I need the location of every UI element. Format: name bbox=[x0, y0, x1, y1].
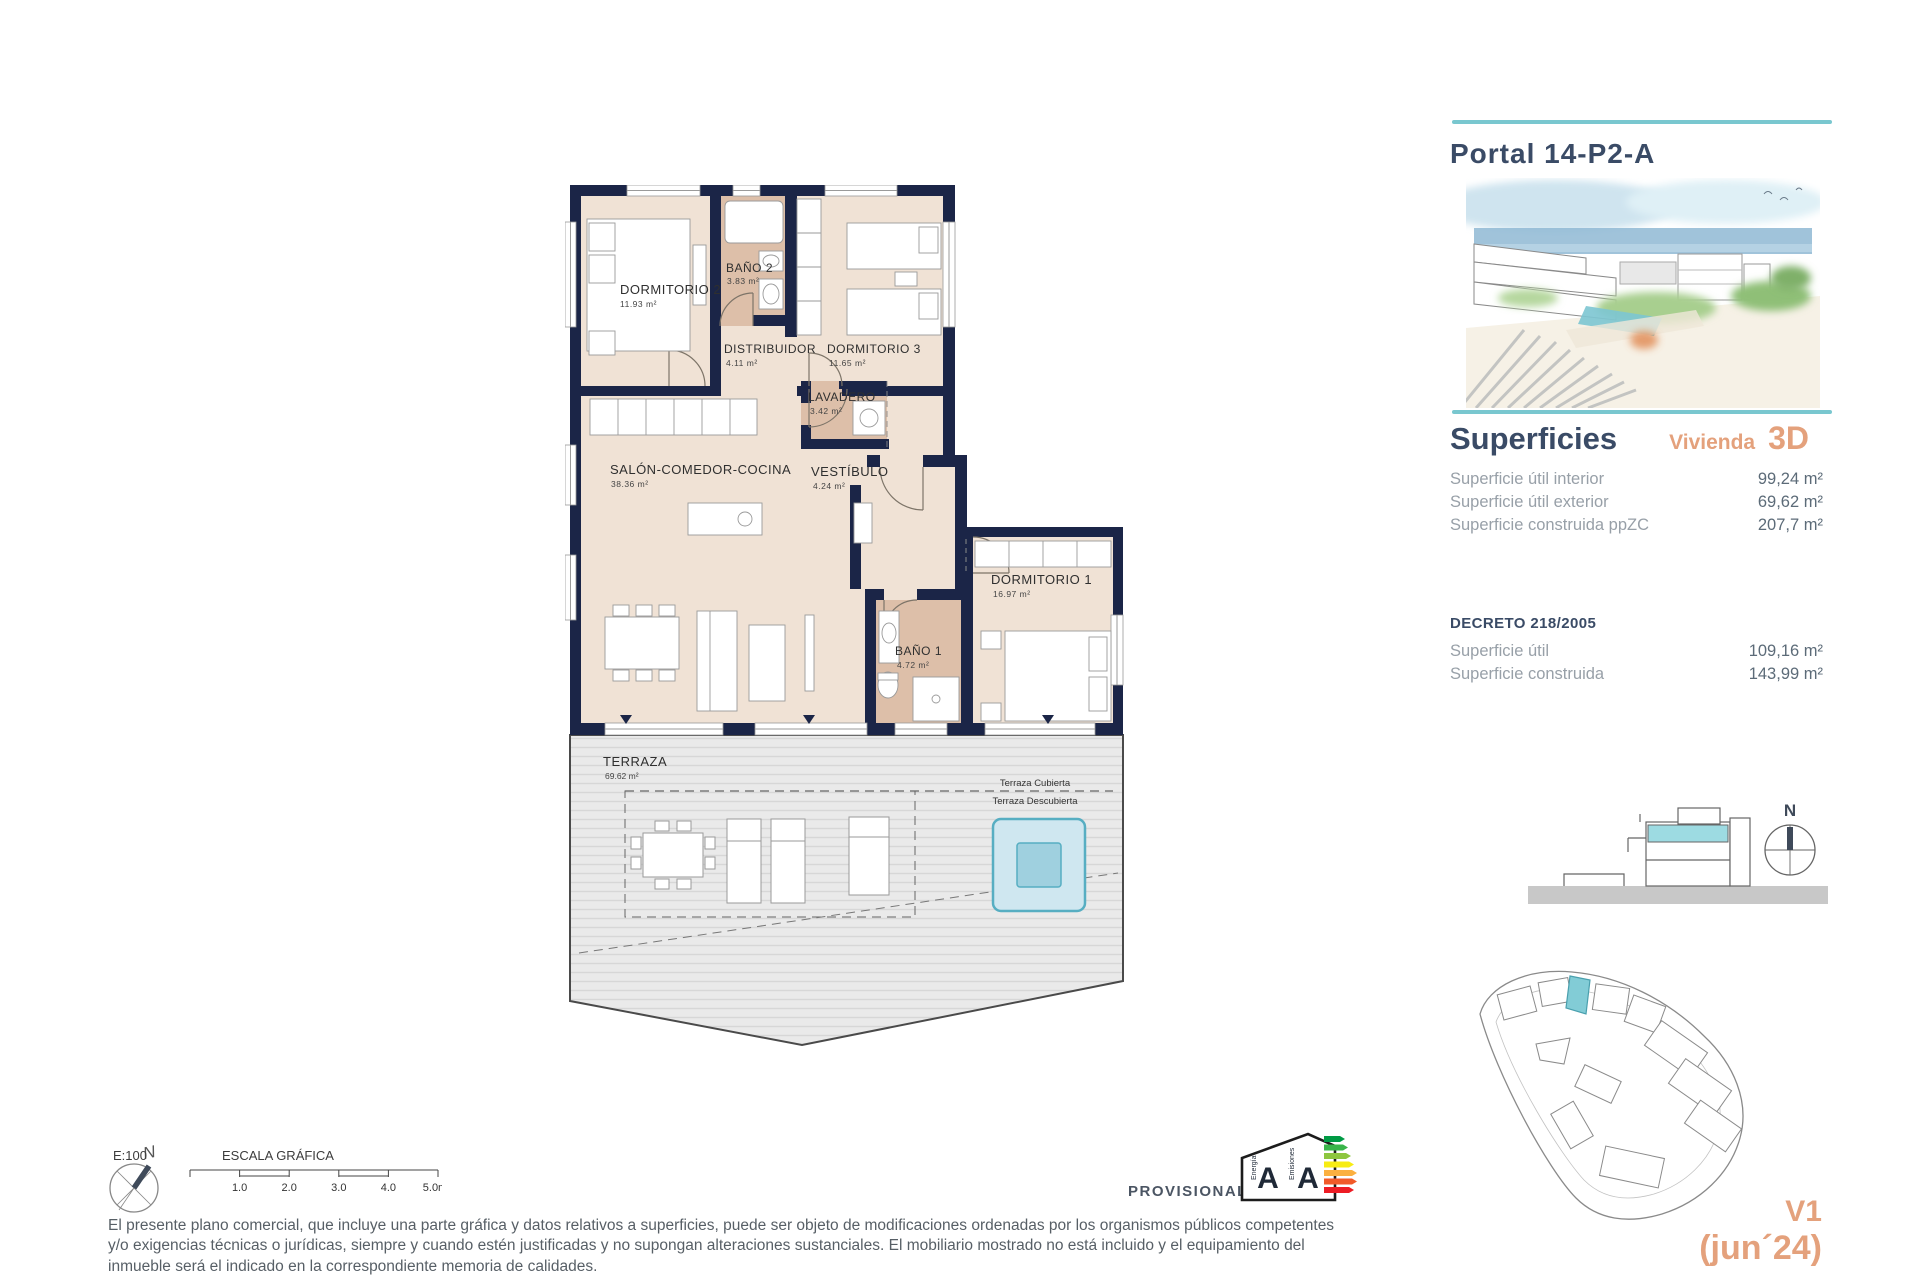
svg-text:LAVADERO: LAVADERO bbox=[808, 390, 876, 404]
vivienda-label: Vivienda bbox=[1669, 431, 1755, 455]
scale-ratio: E:100 bbox=[113, 1148, 147, 1163]
surface-row: Superficie construida ppZC 207,7 m² bbox=[1450, 514, 1823, 537]
room-area: 69.62 m² bbox=[605, 771, 639, 781]
page-title: Portal 14-P2-A bbox=[1450, 138, 1655, 170]
energy-rating-icon: Energía A Emisiones A bbox=[1238, 1130, 1358, 1208]
superficies-heading: Superficies bbox=[1450, 421, 1617, 457]
superficies-header: Superficies Vivienda 3D bbox=[1450, 420, 1835, 457]
surface-row: Superficie útil exterior 69,62 m² bbox=[1450, 491, 1823, 514]
terrace-covered-label: Terraza Cubierta bbox=[1000, 778, 1071, 789]
svg-text:DORMITORIO 2: DORMITORIO 2 bbox=[620, 282, 721, 297]
vivienda-type: 3D bbox=[1768, 420, 1809, 457]
svg-text:DISTRIBUIDOR: DISTRIBUIDOR bbox=[724, 342, 816, 356]
plan-sheet: Terraza Cubierta Terraza Descubierta TER… bbox=[0, 0, 1920, 1280]
svg-text:3.83 m²: 3.83 m² bbox=[727, 276, 759, 286]
surface-row: Superficie útil interior 99,24 m² bbox=[1450, 468, 1823, 491]
svg-text:11.93 m²: 11.93 m² bbox=[620, 299, 657, 309]
plunge-pool bbox=[993, 819, 1085, 911]
terrace-uncovered-label: Terraza Descubierta bbox=[992, 796, 1078, 807]
svg-text:DORMITORIO 3: DORMITORIO 3 bbox=[827, 342, 921, 356]
teal-rule-bottom bbox=[1452, 410, 1832, 414]
section-north-compass: N bbox=[1765, 801, 1815, 875]
svg-text:4.72 m²: 4.72 m² bbox=[897, 660, 929, 670]
north-label: N bbox=[1784, 801, 1796, 820]
svg-text:3.42 m²: 3.42 m² bbox=[810, 406, 842, 416]
svg-text:4.11 m²: 4.11 m² bbox=[726, 358, 758, 368]
svg-text:SALÓN-COMEDOR-COCINA: SALÓN-COMEDOR-COCINA bbox=[610, 462, 791, 477]
scale-tick: 1.0 bbox=[232, 1182, 247, 1194]
energy-letter: A bbox=[1297, 1162, 1319, 1195]
terrace: Terraza Cubierta Terraza Descubierta TER… bbox=[570, 735, 1123, 1045]
version-block: V1 (jun´24) bbox=[1560, 1196, 1822, 1268]
svg-text:VESTÍBULO: VESTÍBULO bbox=[811, 464, 888, 479]
scale-tick: 2.0 bbox=[282, 1182, 297, 1194]
scale-tick: 5.0m bbox=[423, 1182, 442, 1194]
watercolor-illustration bbox=[1466, 178, 1820, 408]
version-code: V1 bbox=[1560, 1196, 1822, 1228]
svg-text:BAÑO 2: BAÑO 2 bbox=[726, 261, 773, 275]
decreto-rows: Superficie útil 109,16 m² Superficie con… bbox=[1450, 640, 1823, 686]
energy-bars bbox=[1324, 1136, 1357, 1193]
svg-text:16.97 m²: 16.97 m² bbox=[993, 589, 1031, 599]
svg-text:BAÑO 1: BAÑO 1 bbox=[895, 644, 942, 658]
scale-tick: 3.0 bbox=[331, 1182, 346, 1194]
svg-text:11.65 m²: 11.65 m² bbox=[829, 358, 866, 368]
teal-rule-top bbox=[1452, 120, 1832, 124]
floorplan-svg: Terraza Cubierta Terraza Descubierta TER… bbox=[565, 185, 1140, 1075]
energy-scale-label: Emisiones bbox=[1289, 1147, 1296, 1180]
scale-title: ESCALA GRÁFICA bbox=[222, 1148, 334, 1163]
provisional-label: PROVISIONAL bbox=[1128, 1183, 1248, 1200]
energy-letter: A bbox=[1257, 1162, 1279, 1195]
room-label: TERRAZA bbox=[603, 754, 667, 769]
building-section-diagram: N bbox=[1528, 792, 1833, 910]
superficies-rows: Superficie útil interior 99,24 m² Superf… bbox=[1450, 468, 1823, 537]
svg-text:4.24 m²: 4.24 m² bbox=[813, 481, 845, 491]
highlighted-floor bbox=[1648, 825, 1728, 842]
highlighted-unit bbox=[1566, 976, 1590, 1014]
version-date: (jun´24) bbox=[1560, 1228, 1822, 1268]
decreto-heading: DECRETO 218/2005 bbox=[1450, 615, 1596, 632]
scale-tick: 4.0 bbox=[381, 1182, 396, 1194]
svg-text:DORMITORIO 1: DORMITORIO 1 bbox=[991, 572, 1092, 587]
graphic-scale-bar: 1.0 2.0 3.0 4.0 5.0m bbox=[186, 1162, 442, 1196]
surface-row: Superficie útil 109,16 m² bbox=[1450, 640, 1823, 663]
apartment: DORMITORIO 2 11.93 m² BAÑO 2 3.83 m² DIS… bbox=[565, 185, 1123, 735]
svg-text:38.36 m²: 38.36 m² bbox=[611, 479, 649, 489]
surface-row: Superficie construida 143,99 m² bbox=[1450, 663, 1823, 686]
disclaimer-text: El presente plano comercial, que incluye… bbox=[108, 1216, 1353, 1277]
